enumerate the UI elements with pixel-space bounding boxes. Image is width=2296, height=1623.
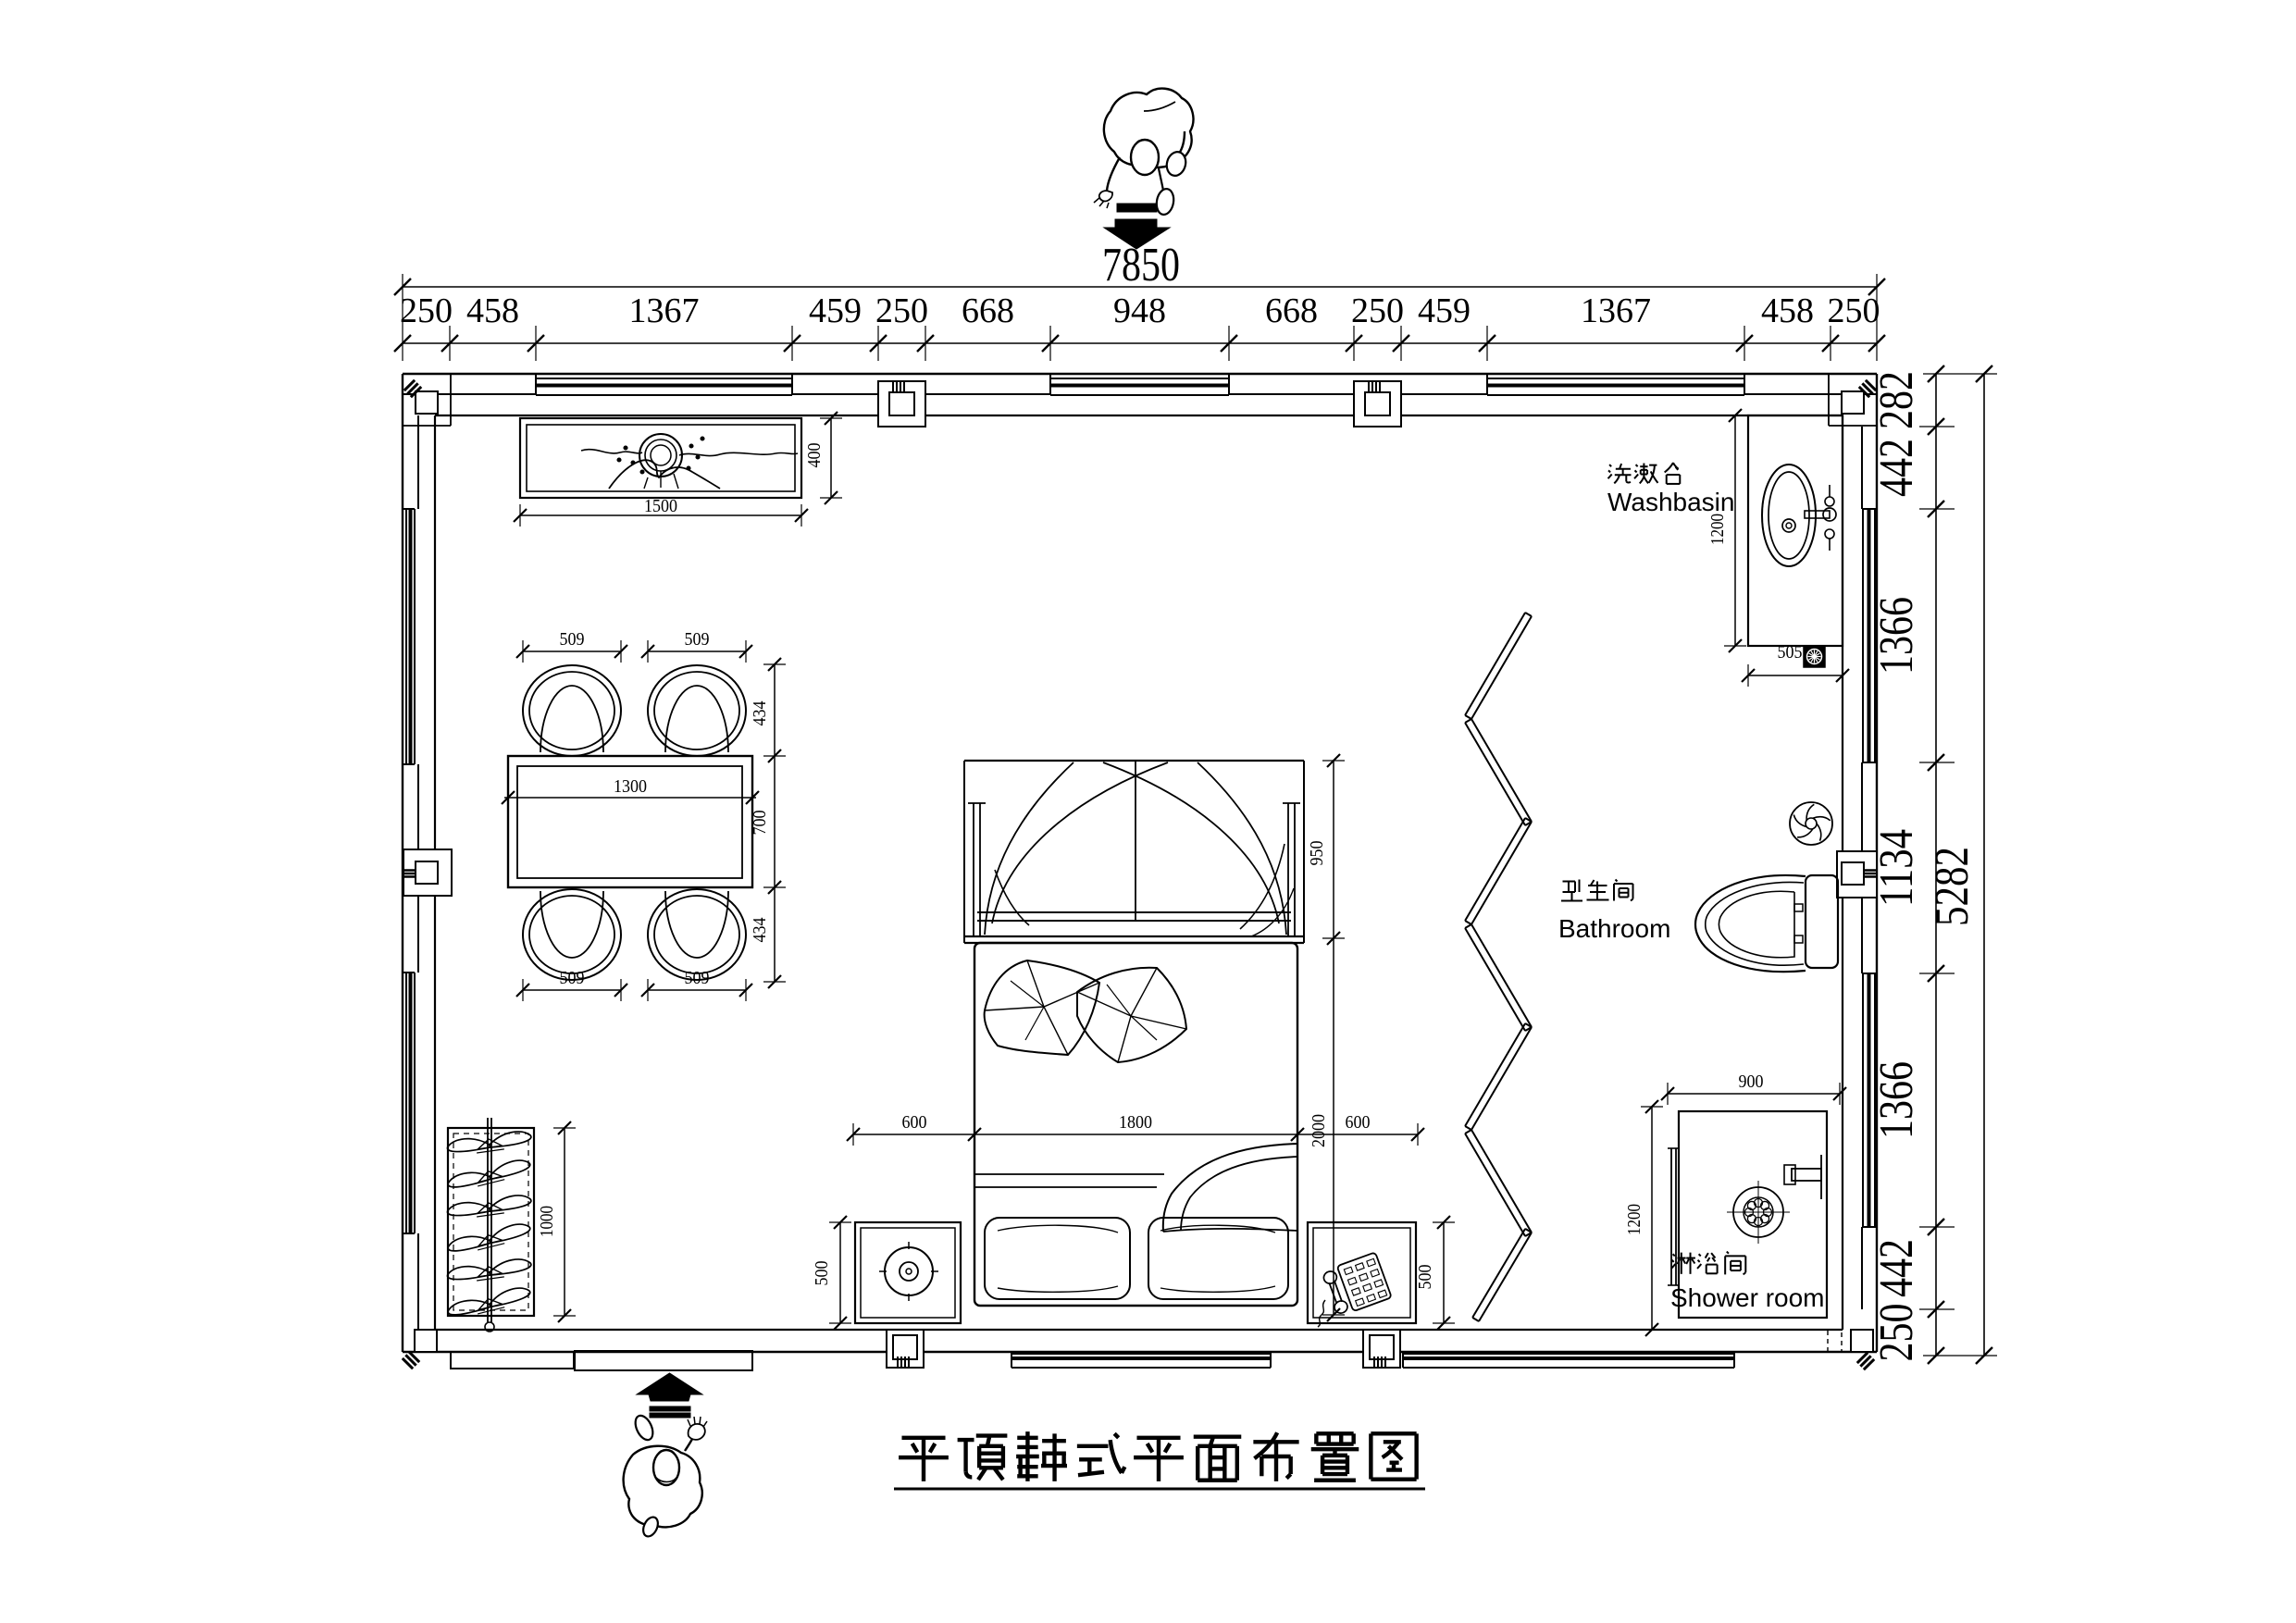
svg-text:2000: 2000 [1309, 1114, 1329, 1147]
svg-text:500: 500 [1415, 1265, 1435, 1290]
svg-text:459: 459 [1418, 291, 1471, 330]
svg-text:434: 434 [750, 918, 770, 943]
svg-text:1200: 1200 [1624, 1204, 1644, 1235]
svg-text:668: 668 [1265, 291, 1318, 330]
svg-text:700: 700 [750, 811, 770, 836]
svg-text:5282: 5282 [1926, 847, 1979, 926]
svg-text:7850: 7850 [1102, 239, 1180, 291]
svg-text:250: 250 [1870, 1304, 1923, 1362]
svg-text:1366: 1366 [1870, 597, 1923, 675]
svg-text:1500: 1500 [644, 496, 677, 516]
svg-text:Bathroom: Bathroom [1558, 914, 1670, 943]
svg-text:400: 400 [804, 443, 825, 468]
svg-text:458: 458 [1761, 291, 1814, 330]
svg-text:459: 459 [809, 291, 862, 330]
svg-text:1200: 1200 [1707, 514, 1728, 545]
svg-text:509: 509 [560, 968, 585, 988]
svg-text:1367: 1367 [629, 291, 700, 330]
svg-text:509: 509 [685, 968, 710, 988]
svg-text:1000: 1000 [537, 1206, 557, 1237]
svg-text:250: 250 [1351, 291, 1404, 330]
svg-text:1367: 1367 [1581, 291, 1651, 330]
svg-text:442: 442 [1870, 1239, 1923, 1297]
svg-text:509: 509 [560, 629, 585, 650]
svg-text:458: 458 [466, 291, 519, 330]
svg-text:434: 434 [750, 701, 770, 726]
svg-text:948: 948 [1113, 291, 1166, 330]
svg-text:250: 250 [1828, 291, 1880, 330]
svg-text:250: 250 [875, 291, 928, 330]
svg-text:505: 505 [1778, 642, 1803, 663]
svg-text:250: 250 [400, 291, 453, 330]
svg-text:668: 668 [962, 291, 1014, 330]
svg-text:1800: 1800 [1119, 1112, 1152, 1133]
svg-text:600: 600 [1346, 1112, 1371, 1133]
svg-text:600: 600 [902, 1112, 927, 1133]
svg-text:Washbasin: Washbasin [1607, 488, 1734, 516]
svg-text:282: 282 [1870, 371, 1923, 429]
svg-text:1134: 1134 [1870, 829, 1923, 907]
svg-text:950: 950 [1307, 841, 1327, 866]
svg-text:1366: 1366 [1870, 1061, 1923, 1139]
svg-text:1300: 1300 [614, 776, 647, 797]
svg-text:500: 500 [812, 1261, 832, 1286]
svg-text:509: 509 [685, 629, 710, 650]
svg-text:Shower room: Shower room [1670, 1283, 1825, 1312]
svg-text:900: 900 [1739, 1072, 1764, 1092]
svg-text:442: 442 [1870, 439, 1923, 497]
